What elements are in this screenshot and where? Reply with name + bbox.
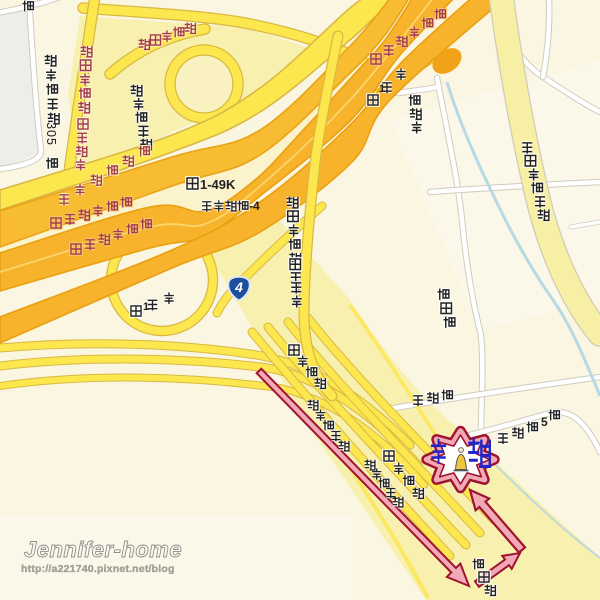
svg-text:5: 5: [541, 415, 548, 429]
svg-text:305: 305: [44, 122, 58, 146]
svg-text:1: 1: [143, 301, 149, 313]
svg-text:1-49K: 1-49K: [200, 177, 236, 192]
svg-text:http://a221740.pixnet.net/blog: http://a221740.pixnet.net/blog: [21, 563, 175, 575]
svg-text:1: 1: [379, 83, 385, 95]
svg-text:4: 4: [234, 279, 243, 295]
svg-text:Jennifer-home: Jennifer-home: [24, 537, 182, 562]
svg-text:-4: -4: [249, 199, 260, 213]
